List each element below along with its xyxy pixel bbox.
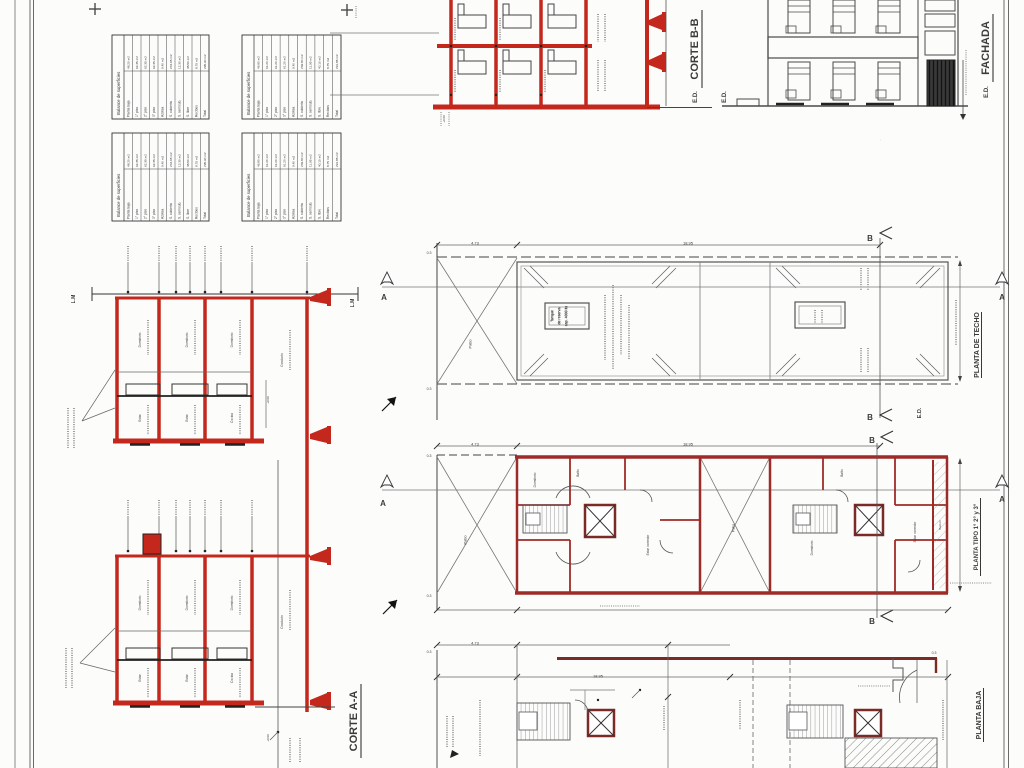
table-cell-label: Azotea [291,107,295,117]
ramp-hatch [845,738,937,768]
annotation-text: Estar comedor [646,534,650,556]
fachada-drawing [722,0,968,120]
table-cell-label: 3° piso [152,209,156,219]
table-cell-label: S. libre [186,209,190,219]
facade-window [876,62,900,100]
section-a-arrows [381,272,1008,284]
table-cell-label: Azotea [160,209,164,219]
table-cell-value: 239.80 m2 [300,54,304,69]
table-cell-value: 61.20 m2 [283,56,287,69]
annotation-text: Dormitorio [533,472,537,487]
annotation-text: B [869,436,875,445]
table-cell-value: 244.65 m2 [169,152,173,167]
table-title: Balance de superficies [116,174,121,217]
facade-window [831,0,855,33]
surface-balance-tables: Balance de superficies48.20 m2Planta baj… [112,35,341,221]
annotation-text: 18.95 [683,240,694,245]
section-structure [113,556,310,705]
annotation-text: 18.95 [593,673,604,678]
table-cell-value: 61.20 m2 [265,154,269,167]
section-b-arrows [880,227,892,421]
table-cell-value: 62.35 m2 [152,154,156,167]
north-arrow-icon [382,397,396,411]
table-cell-label: S. semicub. [309,100,313,117]
annotation-text: L.M [71,295,77,304]
planta-tipo-label: PLANTA TIPO 1° 2° y 3° [974,503,980,570]
planta-techo-label: PLANTA DE TECHO [974,312,981,378]
table-cell-label: Recibos [326,207,330,219]
table-cell-value: 40.10 m2 [317,56,321,69]
top-reference-ticks [89,3,356,18]
corte-aa-lower [66,500,335,762]
surface-table: Balance de superficies48.20 m2Planta baj… [112,133,209,221]
table-cell-value: 8.75 m2 [326,156,330,167]
facade-window [786,0,810,33]
table-cell-value: 61.20 m2 [274,154,278,167]
table-cell-value: 9.40 m2 [291,156,295,167]
stairs [793,505,837,533]
table-title: Balance de superficies [246,72,251,115]
annotation-text: 0.3 [427,387,432,391]
table-cell-label: S. semicub. [177,100,181,117]
parapet-beams [126,384,247,395]
table-cell-value: 12.30 m2 [177,56,181,69]
table-cell-label: Recibos [194,105,198,117]
stairs [517,703,570,740]
fachada-title: FACHADA [980,14,993,82]
annotation-text: Cocina [230,413,234,423]
baja-notes [447,140,943,756]
table-cell-value: 8.75 m2 [194,156,198,167]
table-cell-label: 2° piso [143,107,147,117]
table-cell-value: 38.50 m2 [186,56,190,69]
table-cell-value: 48.20 m2 [126,56,130,69]
elevator [585,505,615,537]
annotation-text: A [999,293,1005,302]
annotation-text: 4.73 [471,640,480,645]
corte-bb-drains [649,12,666,72]
surface-table: Balance de superficies46.80 m2Planta baj… [242,133,341,221]
north-arrow-icon [383,600,397,614]
leader-dots [127,291,309,294]
bay-notes [148,320,290,435]
annotation-text: B [869,617,875,626]
annotation-text: Dormitorio [138,332,142,347]
corte-bb-drawing [330,0,712,126]
table-cell-label: Recibos [326,105,330,117]
annotation-text: 0.3 [427,251,432,255]
sheet-border-right [1004,0,1009,768]
table-cell-label: S. semicub. [177,202,181,219]
parapet-beams [126,648,247,659]
water-tank [143,534,161,554]
elevator [855,710,881,736]
tank-leader [66,628,115,688]
elevator [588,710,614,736]
annotation-text: Dormitorio [230,332,234,347]
annotation-text: 0.3 [427,594,432,598]
table-cell-label: S. libre [317,209,321,219]
annotation-text: 0.3 [427,650,432,654]
annotation-text: Estar [185,413,189,421]
table-cell-label: 3° piso [283,209,287,219]
table-cell-value: 9.40 m2 [291,58,295,69]
leader-stack [128,262,307,295]
table-cell-label: Total [203,110,207,117]
stairs [523,505,567,533]
leader-notes [128,500,252,515]
annotation-text: cap. 4000 lts [564,306,568,327]
leader-notes [128,246,307,261]
corte-bb-beams [458,4,576,74]
table-cell-value: 40.10 m2 [317,154,321,167]
table-cell-value: 239.80 m2 [300,152,304,167]
table-cell-label: 3° piso [283,107,287,117]
table-cell-value: 61.20 m2 [265,56,269,69]
annotation-text: L.M [350,299,356,308]
corte-aa-title: CORTE A-A [348,684,361,758]
annotation-text: E.D. [984,86,990,98]
corte-bb-structure [433,0,660,109]
table-cell-value: 46.80 m2 [256,56,260,69]
annotation-text: E.D. [917,407,923,418]
table-cell-value: 8.75 m2 [194,58,198,69]
annotation-text: Dormitorio [185,595,189,610]
table-cell-value: 61.20 m2 [274,56,278,69]
table-cell-value: 8.75 m2 [326,58,330,69]
tank-leader [68,370,115,448]
annotation-text: B [867,234,873,243]
table-cell-label: 1° piso [135,107,139,117]
annotation-text: Dormitorio [810,540,814,555]
table-cell-label: S. cubierta [169,203,173,219]
table-cell-label: S. cubierta [300,101,304,117]
fachada-label: FACHADA [980,21,992,75]
table-cell-label: Planta baja [256,100,260,117]
annotation-text: A [380,499,386,508]
table-cell-label: Planta baja [126,100,130,117]
annotation-text: Patio [731,524,735,532]
table-cell-label: 2° piso [143,209,147,219]
planta-baja-label: PLANTA BAJA [976,691,983,740]
sheet-border-left [15,0,34,768]
table-cell-label: Total [335,110,339,117]
annotation-text: Cocina [230,673,234,683]
table-cell-label: S. semicub. [309,202,313,219]
table-cell-value: 62.35 m2 [143,56,147,69]
table-cell-value: 48.20 m2 [126,154,130,167]
facade-entry-door [927,60,955,106]
planta-tipo-title: PLANTA TIPO 1° 2° y 3° [974,498,981,576]
roof-drains [310,288,331,444]
table-cell-value: 62.35 m2 [143,154,147,167]
table-cell-label: S. cubierta [300,203,304,219]
table-cell-label: S. libre [186,107,190,117]
table-cell-value: 295.90 m2 [203,54,207,69]
table-cell-label: Planta baja [126,202,130,219]
annotation-text: Conducto [280,615,284,629]
annotation-text: Balcón [938,520,942,530]
table-cell-value: 11.95 m2 [309,154,313,167]
annotations-layer: L.ML.ME.D.E.D.E.D.E.D.AAAABBBB0.30.30.30… [71,86,1005,742]
patio-cross [437,258,517,384]
bay-notes [148,580,300,762]
annotation-text: Estar [138,673,142,681]
annotation-text: de reserva [557,308,561,325]
table-cell-label: S. libre [317,107,321,117]
annotation-text: Patio [467,339,472,349]
annotation-text: +0.00 [442,115,446,123]
annotation-text: Estar [185,673,189,681]
table-cell-value: 62.35 m2 [135,154,139,167]
table-cell-label: 2° piso [274,209,278,219]
table-cell-label: 3° piso [152,107,156,117]
table-cell-label: Recibos [194,207,198,219]
annotation-text: Patio [462,535,467,545]
table-cell-label: Azotea [291,209,295,219]
annotation-text: Dormitorio [138,595,142,610]
annotation-text: +0.00 [266,396,270,404]
table-cell-value: 291.85 m2 [335,152,339,167]
corte-bb-label: CORTE B-B [689,18,701,79]
elevator [855,505,883,535]
table-cell-label: 1° piso [265,107,269,117]
annotation-text: Estar comedor [913,521,917,543]
note-arrow [450,750,459,758]
annotation-text: Tanque [550,310,554,322]
table-cell-label: Planta baja [256,202,260,219]
table-cell-value: 62.35 m2 [135,56,139,69]
table-cell-value: 244.65 m2 [169,54,173,69]
annotation-text: Baño [576,469,580,477]
facade-window [786,62,810,100]
table-cell-value: 62.35 m2 [152,56,156,69]
planta-techo-title: PLANTA DE TECHO [974,312,982,378]
annotation-text: +0.00 [266,734,270,742]
table-cell-label: Azotea [160,107,164,117]
table-cell-value: 46.80 m2 [256,154,260,167]
table-cell-value: 295.90 m2 [203,152,207,167]
corte-bb-nodes [450,45,588,97]
table-cell-value: 9.40 m2 [160,156,164,167]
plan-sheet: Balance de superficies48.20 m2Planta baj… [0,0,1024,768]
annotation-text: Conducto [280,353,284,367]
table-cell-label: 1° piso [135,209,139,219]
table-cell-value: 61.20 m2 [283,154,287,167]
annotation-text: E.D. [693,91,699,103]
table-title: Balance de superficies [246,174,251,217]
table-cell-label: 1° piso [265,209,269,219]
roof-notes [605,268,956,372]
corte-bb-title: CORTE B-B [689,10,702,88]
table-cell-value: 11.95 m2 [309,56,313,69]
tank-right [795,302,845,328]
annotation-text: 4.73 [471,441,480,446]
planta-techo-drawing [381,227,1008,421]
facade-window [831,62,855,100]
table-cell-label: S. cubierta [169,101,173,117]
roof-drains [310,547,331,710]
planta-baja-drawing [434,140,951,768]
table-cell-value: 12.30 m2 [177,154,181,167]
table-title: Balance de superficies [116,72,121,115]
surface-table: Balance de superficies48.20 m2Planta baj… [112,35,209,119]
annotation-text: A [999,495,1005,504]
annotation-text: B [867,413,873,422]
corte-aa-label: CORTE A-A [348,691,360,752]
stairs [787,705,843,738]
annotation-text: 4.73 [471,240,480,245]
annotation-text: 18.95 [683,441,694,446]
section-a-arrows [381,475,1008,487]
annotation-text: Baño [840,469,844,477]
roof-slope-ticks [524,266,940,376]
table-cell-label: Total [335,212,339,219]
annotation-text: 0.3 [427,454,432,458]
table-cell-label: Total [203,212,207,219]
annotation-text: A [381,293,387,302]
annotation-text: Dormitorio [185,332,189,347]
table-cell-value: 9.40 m2 [160,58,164,69]
table-cell-value: 291.85 m2 [335,54,339,69]
facade-window [876,0,900,33]
annotation-text: Dormitorio [230,595,234,610]
table-cell-value: 38.50 m2 [186,154,190,167]
annotation-text: 0.3 [932,651,937,655]
corte-aa-upper [68,246,358,768]
surface-table: Balance de superficies46.80 m2Planta baj… [242,35,341,119]
table-cell-label: 2° piso [274,107,278,117]
patio-cross [437,457,517,593]
annotation-text: Estar [138,413,142,421]
annotation-text: E.D. [722,91,728,103]
planta-baja-title: PLANTA BAJA [976,688,984,742]
